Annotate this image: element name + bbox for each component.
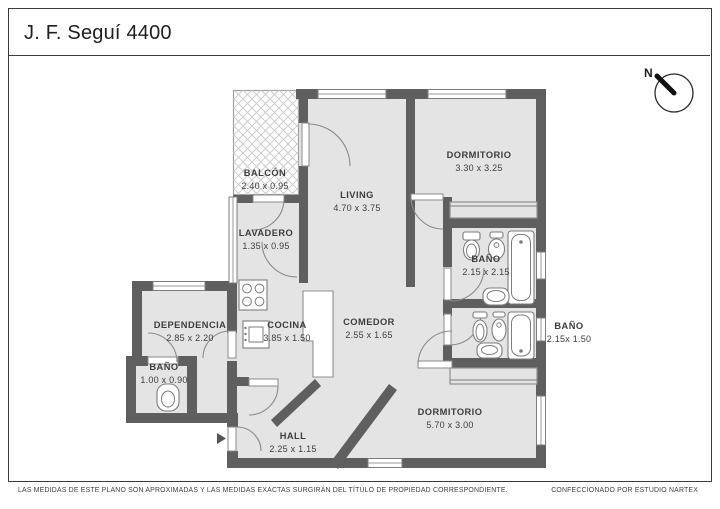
floorplan-drawing xyxy=(0,0,720,509)
window-bano-1 xyxy=(537,252,546,279)
room-label-lavadero: LAVADERO 1.35 x 0.95 xyxy=(239,227,293,253)
room-label-balcon: BALCÓN 2.40 x 0.95 xyxy=(241,167,288,193)
window-bano-2 xyxy=(537,318,546,341)
footer-disclaimer: LAS MEDIDAS DE ESTE PLANO SON APROXIMADA… xyxy=(18,487,508,494)
floor-plan-page: J. F. Seguí 4400 N xyxy=(0,0,720,509)
room-label-dormitorio-2: DORMITORIO 5.70 x 3.00 xyxy=(418,406,483,432)
room-label-bano-3: BAÑO 1.00 x 0.90 xyxy=(140,361,187,387)
bathroom-sink-icon xyxy=(483,288,509,305)
bathtub-icon xyxy=(508,231,534,304)
stove-icon xyxy=(239,280,267,310)
window-lavadero xyxy=(229,197,237,283)
room-label-dependencia: DEPENDENCIA 2.85 x 2.20 xyxy=(154,319,227,345)
room-label-dormitorio-1: DORMITORIO 3.30 x 3.25 xyxy=(447,149,512,175)
footer-credit: CONFECCIONADO POR ESTUDIO NARTEX xyxy=(551,487,698,494)
closet-dormitorio-1 xyxy=(450,202,537,218)
room-label-hall: HALL 2.25 x 1.15 xyxy=(269,430,316,456)
bidet-icon xyxy=(492,312,506,341)
window-dormitorio-2-bottom xyxy=(368,459,402,468)
room-label-comedor: COMEDOR 2.55 x 1.65 xyxy=(343,316,395,342)
bathtub-icon xyxy=(508,312,534,359)
window-dependencia xyxy=(153,282,205,291)
room-label-cocina: COCINA 3.85 x 1.50 xyxy=(263,319,310,345)
bathroom-sink-icon xyxy=(477,343,502,358)
room-label-bano-2: BAÑO 2.15x 1.50 xyxy=(547,320,592,346)
window-dormitorio-2-side xyxy=(537,396,546,445)
window-living xyxy=(318,90,386,99)
toilet-icon xyxy=(157,384,179,411)
room-label-bano-1: BAÑO 2.15 x 2.15 xyxy=(462,253,509,279)
toilet-icon xyxy=(473,312,487,342)
entry-arrow-icon xyxy=(217,433,226,444)
closet-dormitorio-2 xyxy=(450,368,537,384)
window-dormitorio-1 xyxy=(428,90,506,99)
room-label-living: LIVING 4.70 x 3.75 xyxy=(333,189,380,215)
